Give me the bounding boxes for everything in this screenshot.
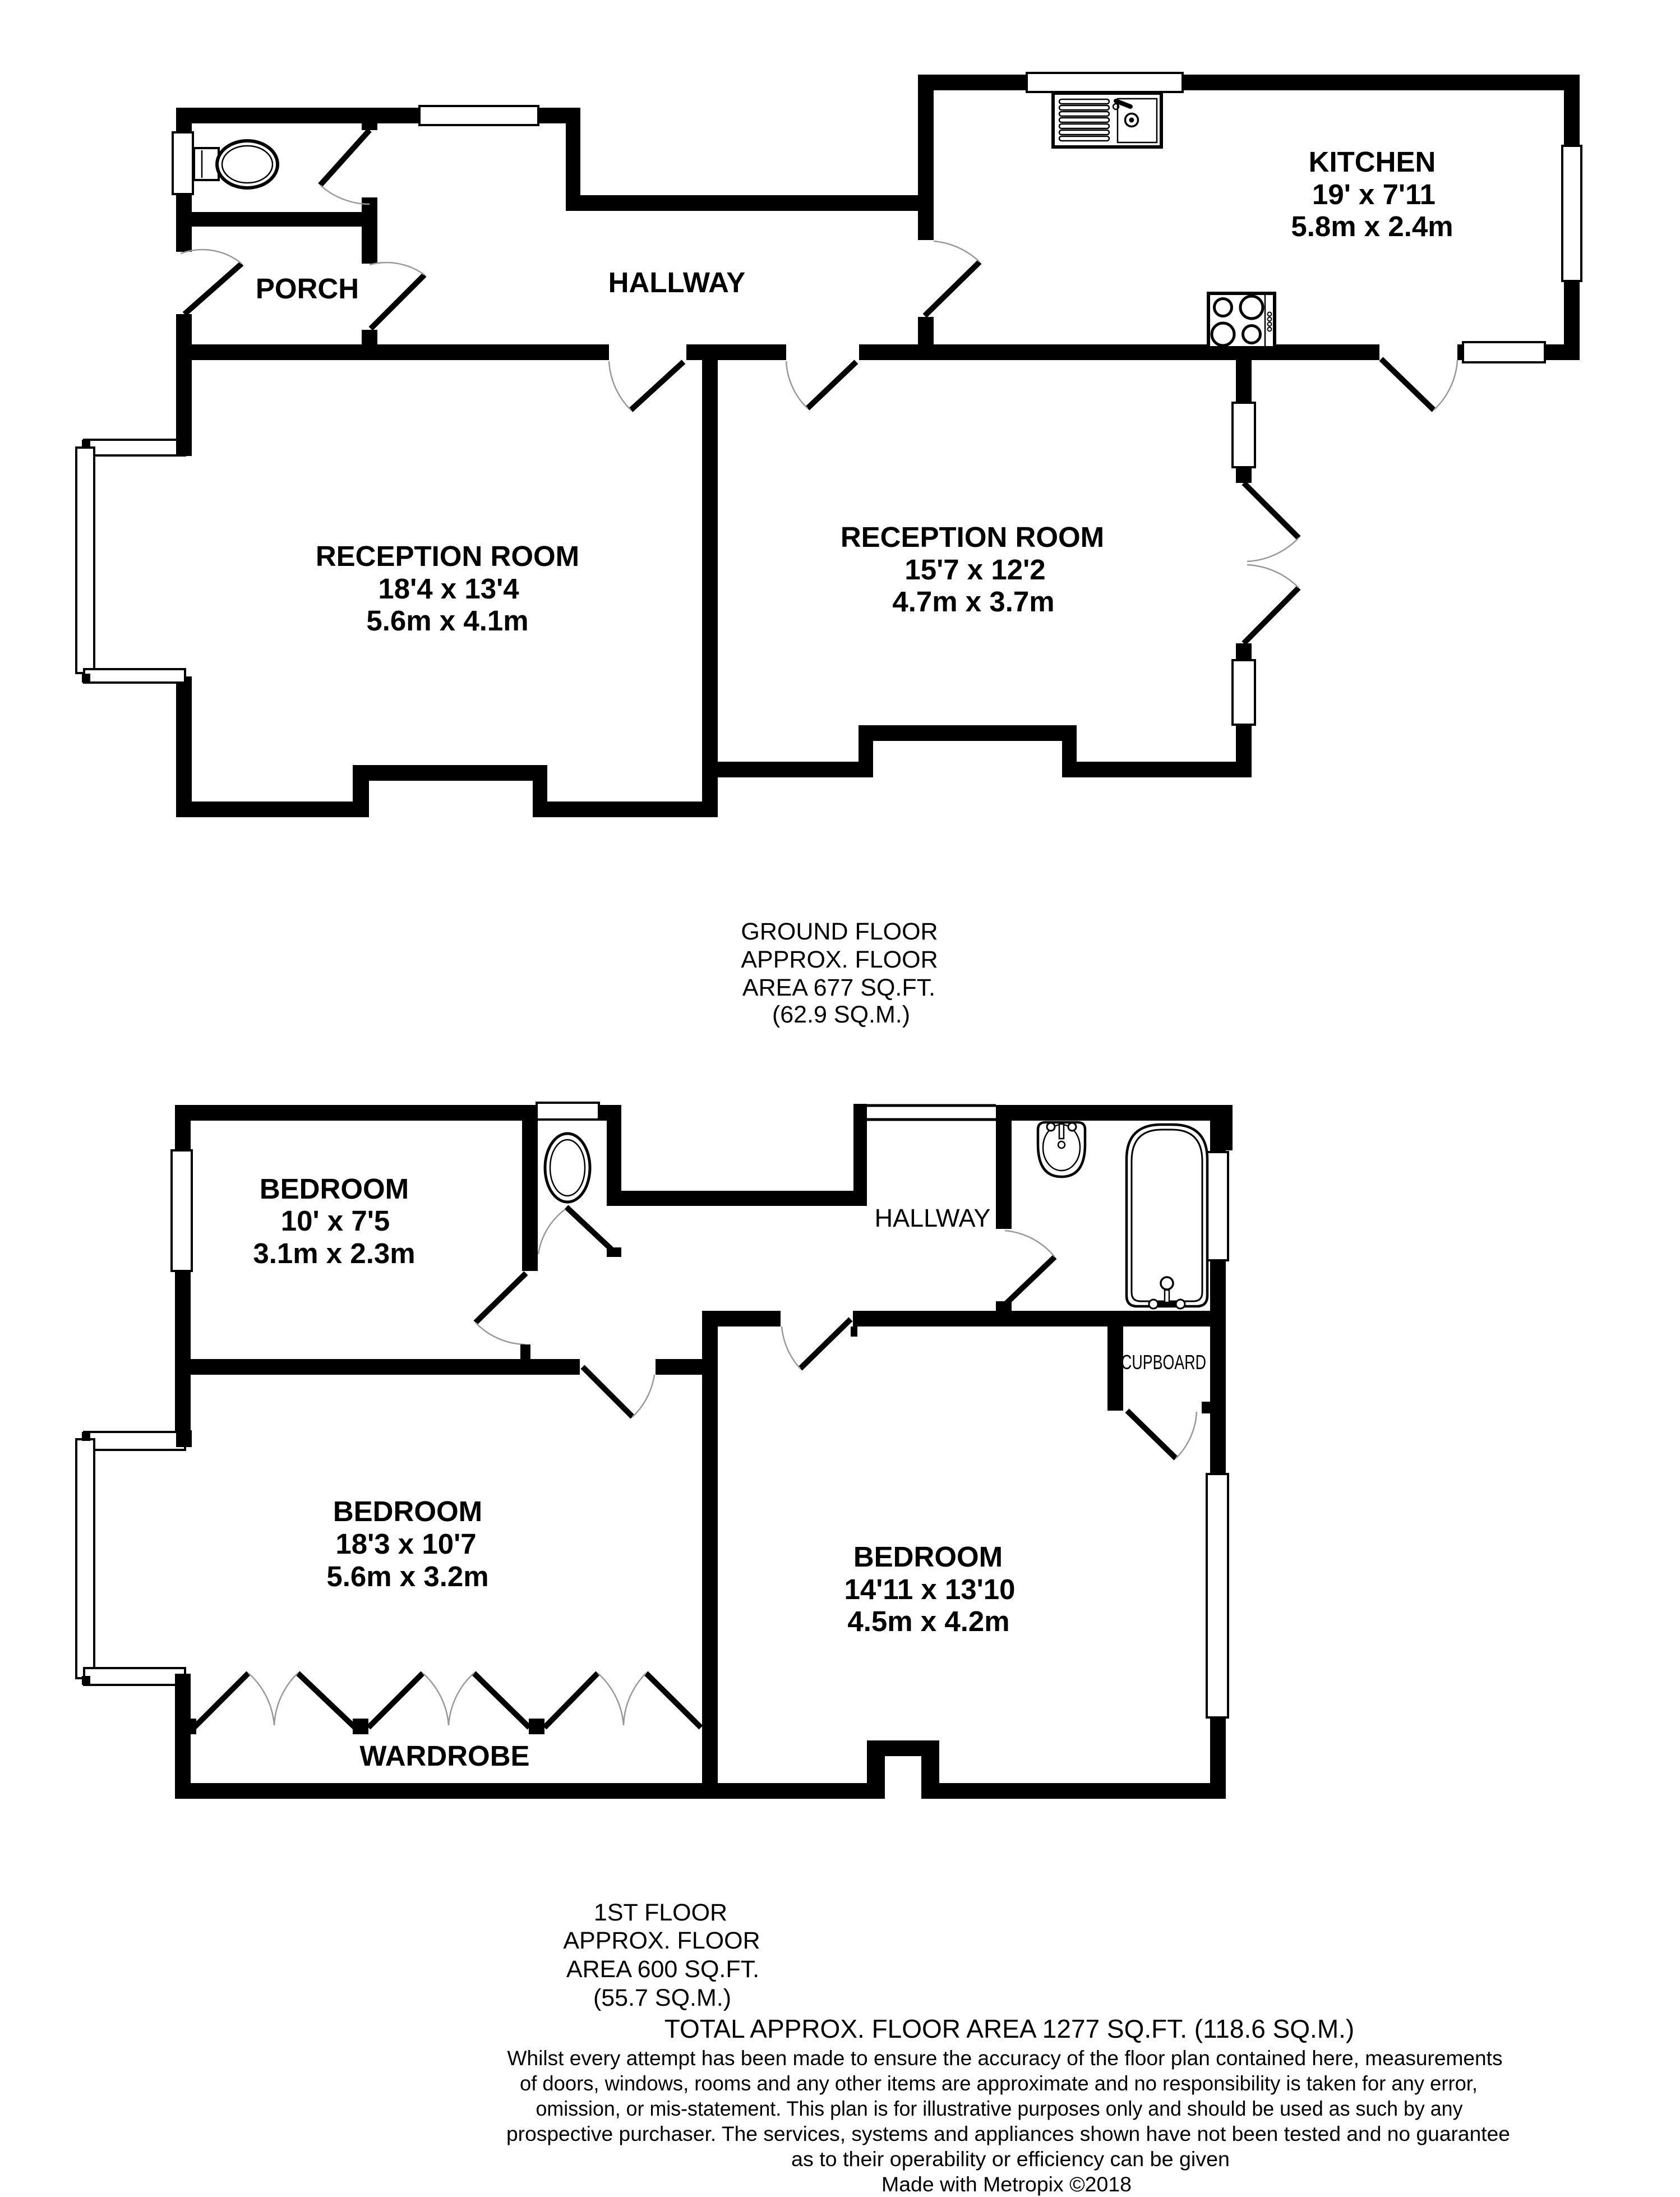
svg-text:prospective purchaser. The ser: prospective purchaser. The services, sys… xyxy=(506,2122,1510,2145)
svg-text:BEDROOM: BEDROOM xyxy=(333,1495,482,1527)
svg-text:(55.7 SQ.M.): (55.7 SQ.M.) xyxy=(593,1984,731,2011)
svg-text:KITCHEN: KITCHEN xyxy=(1309,146,1436,178)
svg-text:Whilst every attempt has been: Whilst every attempt has been made to en… xyxy=(507,2047,1503,2070)
svg-text:TOTAL APPROX. FLOOR AREA 1277: TOTAL APPROX. FLOOR AREA 1277 SQ.FT. (11… xyxy=(664,2014,1355,2043)
svg-text:HALLWAY: HALLWAY xyxy=(608,266,746,298)
svg-text:AREA 600 SQ.FT.: AREA 600 SQ.FT. xyxy=(566,1956,759,1983)
svg-text:RECEPTION ROOM: RECEPTION ROOM xyxy=(841,521,1104,553)
svg-text:3.1m x 2.3m: 3.1m x 2.3m xyxy=(253,1237,415,1269)
svg-text:as to their operability or eff: as to their operability or efficiency ca… xyxy=(791,2148,1230,2171)
svg-text:AREA 677 SQ.FT.: AREA 677 SQ.FT. xyxy=(742,974,935,1001)
svg-text:19' x 7'11: 19' x 7'11 xyxy=(1312,178,1436,210)
svg-text:BEDROOM: BEDROOM xyxy=(853,1541,1003,1573)
svg-text:of doors, windows, rooms and a: of doors, windows, rooms and any other i… xyxy=(520,2072,1478,2095)
svg-text:18'3 x 10'7: 18'3 x 10'7 xyxy=(335,1528,476,1560)
svg-text:BEDROOM: BEDROOM xyxy=(260,1173,409,1205)
svg-text:15'7 x 12'2: 15'7 x 12'2 xyxy=(904,554,1045,586)
svg-text:14'11 x 13'10: 14'11 x 13'10 xyxy=(844,1573,1015,1605)
svg-text:5.6m x 3.2m: 5.6m x 3.2m xyxy=(326,1560,488,1592)
svg-text:APPROX. FLOOR: APPROX. FLOOR xyxy=(741,946,938,973)
svg-text:GROUND FLOOR: GROUND FLOOR xyxy=(741,918,938,945)
svg-text:CUPBOARD: CUPBOARD xyxy=(1121,1351,1206,1374)
svg-text:RECEPTION ROOM: RECEPTION ROOM xyxy=(316,540,579,572)
svg-text:4.7m x 3.7m: 4.7m x 3.7m xyxy=(892,586,1054,618)
svg-text:10' x 7'5: 10' x 7'5 xyxy=(281,1205,390,1237)
svg-text:Made with Metropix ©2018: Made with Metropix ©2018 xyxy=(881,2173,1132,2196)
svg-text:18'4 x 13'4: 18'4 x 13'4 xyxy=(378,573,519,605)
svg-text:WARDROBE: WARDROBE xyxy=(359,1740,529,1772)
svg-text:PORCH: PORCH xyxy=(256,273,359,305)
svg-text:5.6m x 4.1m: 5.6m x 4.1m xyxy=(366,605,528,637)
svg-text:(62.9 SQ.M.): (62.9 SQ.M.) xyxy=(772,1001,910,1028)
svg-text:omission, or mis-statement. Th: omission, or mis-statement. This plan is… xyxy=(536,2097,1463,2120)
svg-text:HALLWAY: HALLWAY xyxy=(875,1204,991,1232)
svg-text:APPROX. FLOOR: APPROX. FLOOR xyxy=(563,1927,760,1954)
svg-text:5.8m x 2.4m: 5.8m x 2.4m xyxy=(1291,210,1453,242)
svg-text:1ST FLOOR: 1ST FLOOR xyxy=(594,1899,727,1926)
svg-text:4.5m x 4.2m: 4.5m x 4.2m xyxy=(847,1605,1009,1637)
